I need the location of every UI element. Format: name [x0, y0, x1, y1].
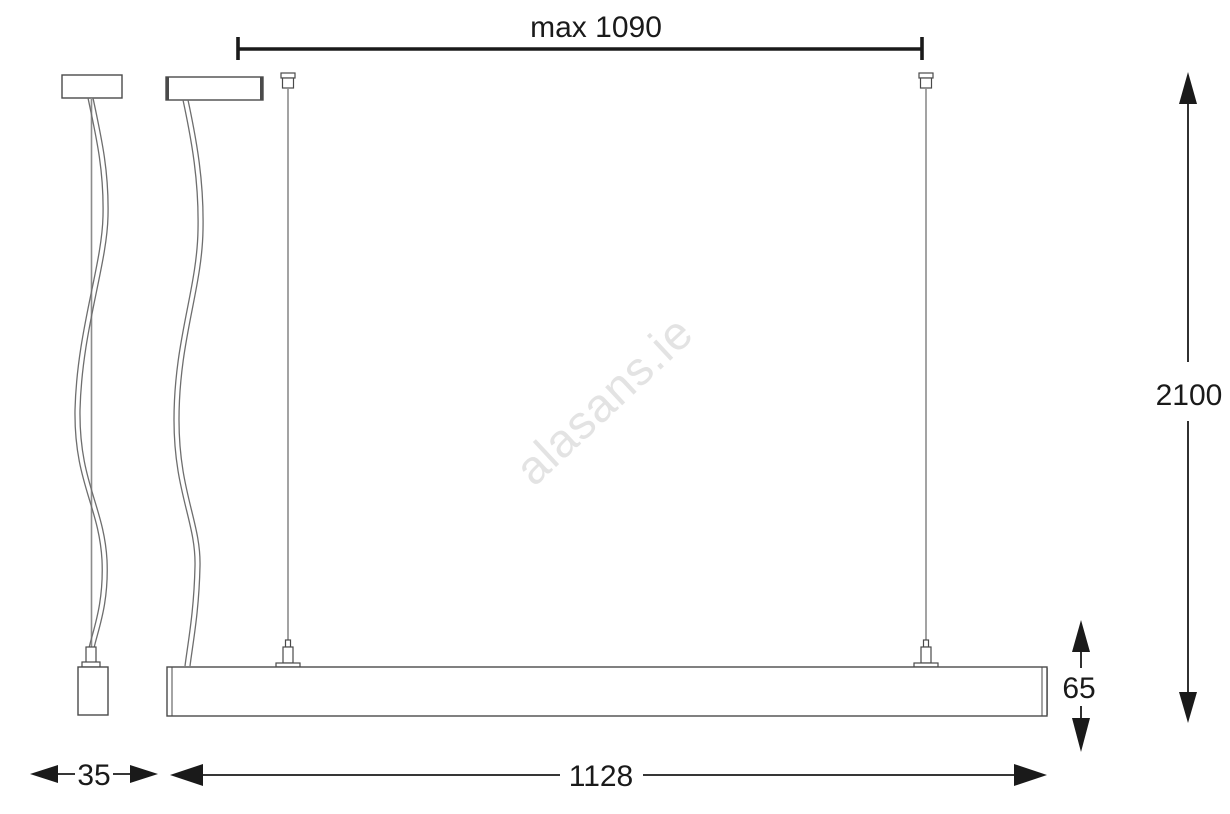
left-ceiling-mount-cap: [281, 73, 295, 78]
side-power-cable: [75, 98, 103, 648]
dimension-bar-length-label: 1128: [569, 760, 634, 793]
left-ceiling-mount-body: [283, 78, 294, 88]
dimension-bar-depth: 35: [30, 759, 158, 792]
right-arrowhead-1128: [1014, 764, 1047, 786]
watermark: alasans.ie: [505, 305, 703, 495]
dimension-bar-height: 65: [1062, 620, 1095, 752]
dimension-max-suspension-label: max 1090: [530, 11, 662, 44]
right-gripper-nub: [924, 640, 929, 647]
left-arrowhead-1128: [170, 764, 203, 786]
dimension-bar-height-label: 65: [1062, 672, 1095, 705]
left-gripper-nub: [286, 640, 291, 647]
front-canopy: [166, 77, 263, 100]
side-canopy: [62, 75, 122, 98]
bar-body: [167, 667, 1047, 716]
right-arrowhead-35: [130, 765, 158, 783]
dimension-bar-depth-label: 35: [77, 759, 110, 792]
right-ceiling-mount-body: [921, 78, 932, 88]
dimension-overall-drop: 2100: [1156, 72, 1223, 723]
right-ceiling-mount-cap: [919, 73, 933, 78]
front-power-cable-line2: [179, 100, 203, 666]
side-bar-end-cross-section: [78, 667, 108, 715]
left-suspension: [276, 73, 300, 667]
dimension-max-suspension: max 1090: [238, 11, 922, 60]
light-bar: [167, 667, 1048, 716]
left-arrowhead-35: [30, 765, 58, 783]
side-view: [62, 75, 122, 715]
side-power-cable-line2: [80, 98, 108, 648]
side-cable-stem: [86, 647, 96, 663]
up-arrowhead-65: [1072, 620, 1090, 652]
right-suspension: [914, 73, 938, 667]
right-gripper-body: [921, 647, 931, 663]
left-gripper-body: [283, 647, 293, 663]
front-power-cable: [174, 100, 198, 666]
pendant-lamp-dimension-drawing: alasans.ie: [0, 0, 1230, 814]
dimension-bar-length: 1128: [170, 760, 1047, 793]
up-arrowhead-2100: [1179, 72, 1197, 104]
dimension-overall-drop-label: 2100: [1156, 379, 1223, 412]
side-stem-flange: [82, 662, 100, 667]
down-arrowhead-65: [1072, 718, 1090, 752]
down-arrowhead-2100: [1179, 692, 1197, 723]
